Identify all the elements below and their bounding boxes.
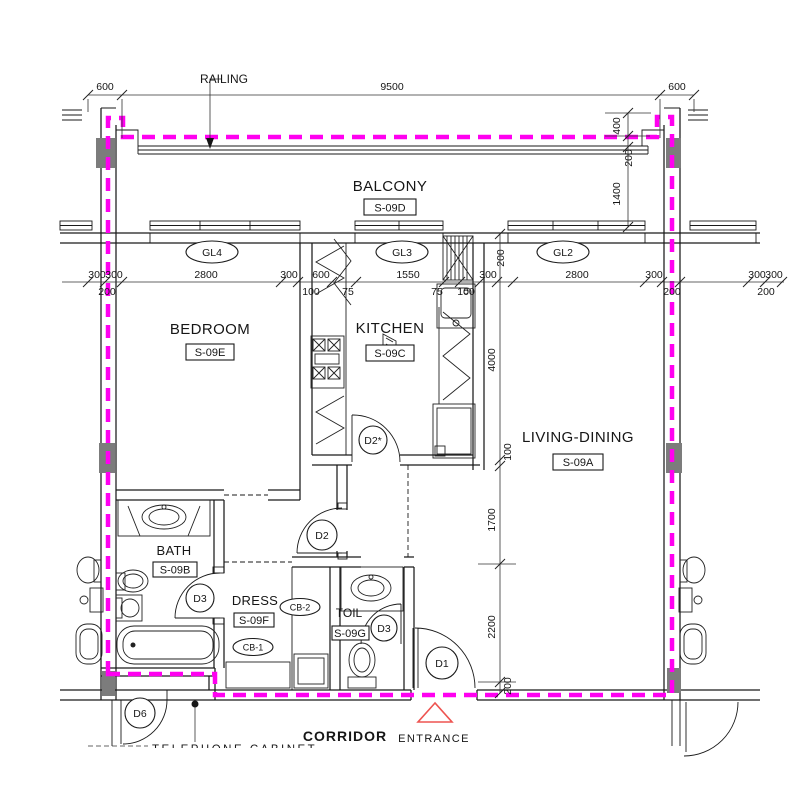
d1-label: D1 [435,658,449,670]
cb1-label: CB-1 [243,643,264,653]
dim-row-300b: 300 [479,269,497,281]
dim-v-100: 100 [502,443,514,461]
tag-bath: S-09B [160,565,191,577]
dim-row-300c: 300 [645,269,663,281]
dim-balcony-400: 400 [611,117,623,135]
entrance-label: ENTRANCE [398,733,470,745]
gl4-label: GL4 [202,247,222,259]
dim-top-middle: 9500 [380,81,404,93]
dim-row-600: 600 [312,269,330,281]
dim-row-75a: 75 [342,286,354,298]
d3-bath-label: D3 [193,593,207,605]
dim-left-300a: 300 [88,269,106,281]
dim-gl4-width: 2800 [194,269,218,281]
dim-row-100b: 100 [457,286,475,298]
floor-plan-drawing: 600 9500 600 RAILING 400 200 1400 300 30… [0,0,800,800]
label-balcony: BALCONY [353,178,428,195]
dim-top-right: 600 [668,81,686,93]
tag-dress: S-09F [239,615,269,627]
dim-v-2200: 2200 [486,615,498,639]
railing-label: RAILING [200,72,248,86]
dim-gl2-width: 2800 [565,269,589,281]
tag-kitchen: S-09C [374,348,405,360]
gl3-label: GL3 [392,247,412,259]
dim-gl3-width: 1550 [396,269,420,281]
d3-toilet-label: D3 [377,623,391,635]
d2-label: D2 [315,530,329,542]
gl2-label: GL2 [553,247,573,259]
label-kitchen: KITCHEN [356,320,425,337]
dim-balcony-200: 200 [623,149,635,167]
column [96,138,115,168]
tag-living: S-09A [563,457,594,469]
dim-row-200: 200 [663,286,681,298]
tag-bedroom: S-09E [195,347,226,359]
dim-top-left: 600 [96,81,114,93]
dim-v-4000: 4000 [486,348,498,372]
dim-pier-200: 200 [495,249,507,267]
dim-v-1700: 1700 [486,508,498,532]
label-living-dining: LIVING-DINING [522,429,634,446]
dim-right-300b: 300 [765,269,783,281]
dim-v-200: 200 [502,677,514,695]
d2-kitchen-label: D2* [364,435,382,447]
dim-row-300a: 300 [280,269,298,281]
dim-left-300b: 300 [105,269,123,281]
dim-row-100a: 100 [302,286,320,298]
dim-right-200: 200 [757,286,775,298]
label-dress: DRESS [232,593,278,608]
dim-right-300a: 300 [748,269,766,281]
page-edge-mask [80,748,410,800]
floor-plan-canvas: 600 9500 600 RAILING 400 200 1400 300 30… [0,0,800,800]
label-bedroom: BEDROOM [170,321,250,338]
label-bath: BATH [157,543,192,558]
d6-label: D6 [133,708,147,720]
dim-row-75b: 75 [431,286,443,298]
tag-toilet: S-09G [334,628,366,640]
tag-balcony: S-09D [374,203,405,215]
label-corridor: CORRIDOR [303,728,387,744]
label-toilet: TOIL [336,606,363,620]
dim-balcony-1400: 1400 [611,182,623,206]
dim-left-200: 200 [98,286,116,298]
cb2-label: CB-2 [290,603,311,613]
